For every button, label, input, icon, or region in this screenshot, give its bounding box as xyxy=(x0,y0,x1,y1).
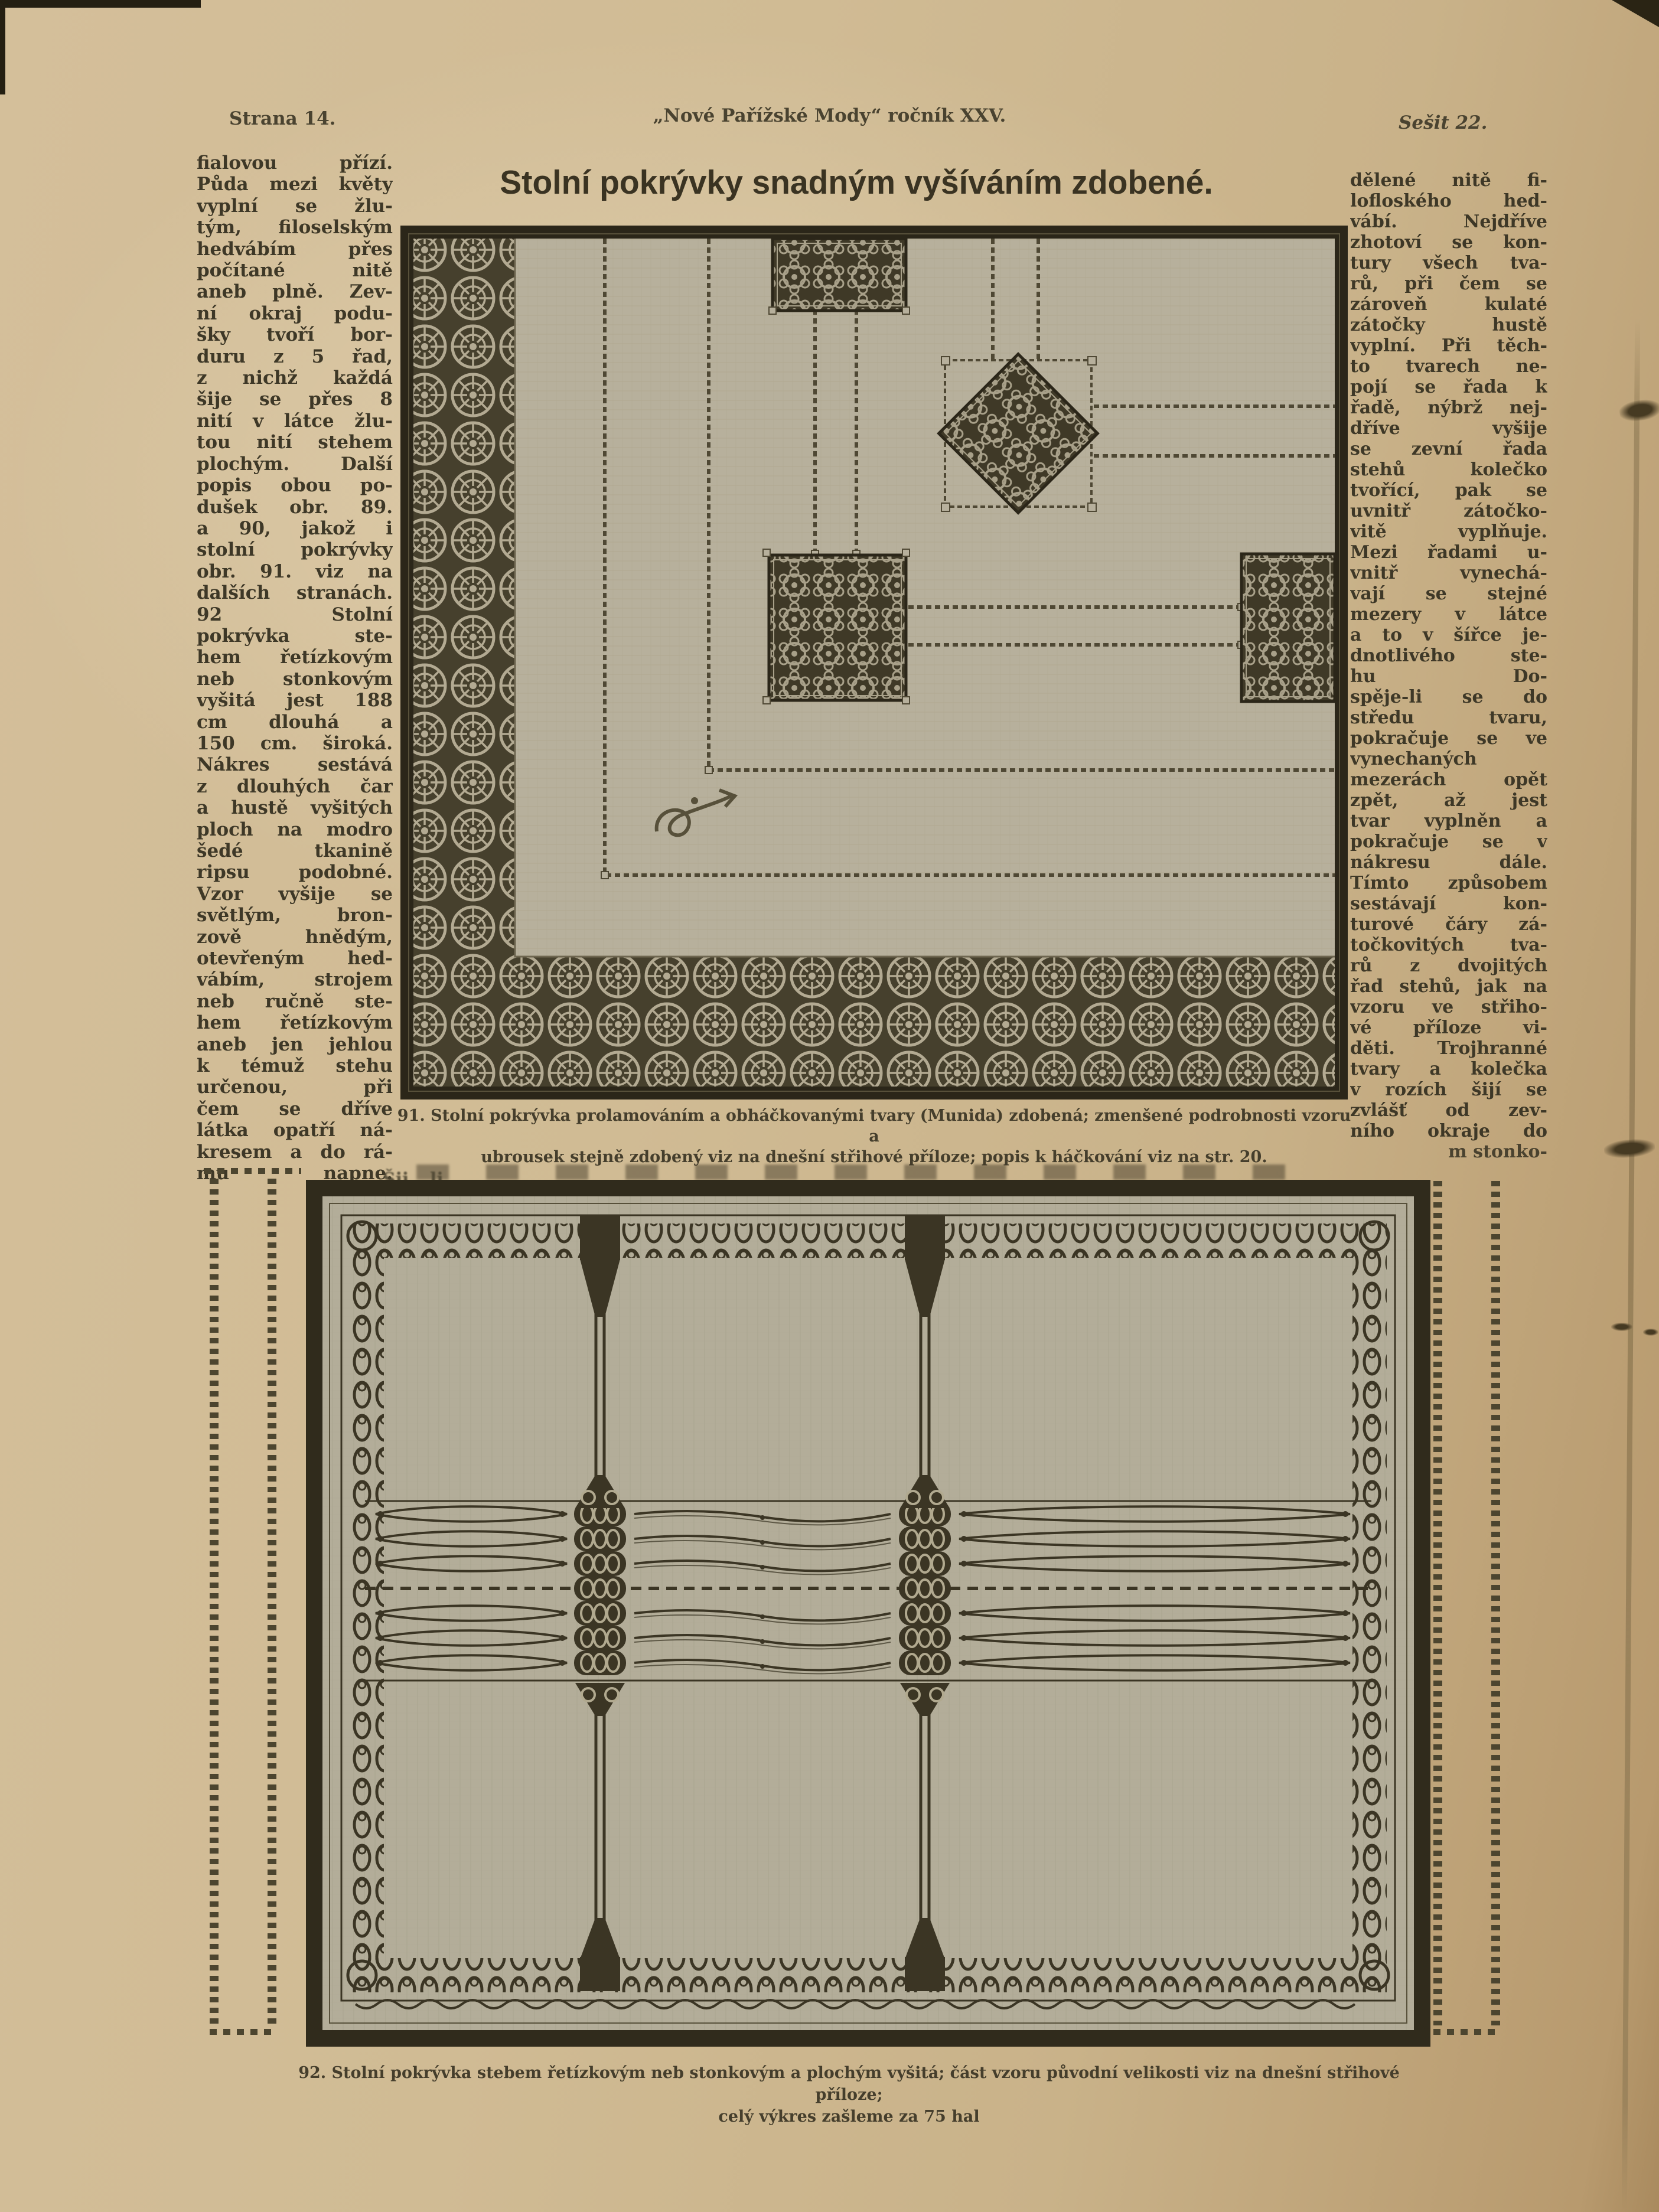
text-line: pokračuje se ve xyxy=(1350,728,1547,749)
obscured-text-line xyxy=(416,1164,1320,1180)
text-line: tvar vyplněn a xyxy=(1350,811,1547,831)
text-line: mezerách opět xyxy=(1350,769,1547,790)
text-line: kresem a do rá- xyxy=(197,1141,393,1163)
text-line: vyplní se žlu- xyxy=(197,195,393,217)
text-line: zátočky hustě xyxy=(1350,315,1547,335)
text-line: sestávají kon- xyxy=(1350,893,1547,914)
text-line: rů z dvojitých xyxy=(1350,955,1547,976)
text-line: počítané nitě xyxy=(197,260,393,281)
cut-mark xyxy=(1433,2029,1501,2035)
text-line: vnitř vynechá- xyxy=(1350,563,1547,583)
ink-blot xyxy=(1603,1137,1655,1159)
text-line: a hustě vyšitých xyxy=(197,797,393,818)
crochet-motif-center xyxy=(769,555,906,700)
cut-mark xyxy=(268,1179,276,2029)
text-line: lofloského hed- xyxy=(1350,191,1547,211)
issue-label: Sešit 22. xyxy=(1399,112,1487,133)
text-line: hem řetízkovým xyxy=(197,1012,393,1033)
text-line: hedvábím přes xyxy=(197,239,393,260)
text-line: středu tvaru, xyxy=(1350,707,1547,728)
crochet-motif-right xyxy=(1241,554,1335,702)
text-line: určenou, při xyxy=(197,1076,393,1098)
text-line: látka opatří ná- xyxy=(197,1120,393,1141)
text-line: pokračuje se v xyxy=(1350,831,1547,852)
text-line: Půda mezi květy xyxy=(197,174,393,195)
text-line: fialovou přízí. xyxy=(197,152,393,174)
text-line: nití v látce žlu- xyxy=(197,410,393,432)
text-line: z dlouhých čar xyxy=(197,776,393,797)
text-line: ripsu podobné. xyxy=(197,862,393,883)
cut-mark xyxy=(210,1179,219,2029)
text-line: tým, filoselským xyxy=(197,217,393,238)
figure-92-svg xyxy=(306,1180,1430,2047)
text-line: zároveň kulaté xyxy=(1350,294,1547,315)
text-line: m stonko- xyxy=(1350,1141,1547,1162)
cut-mark xyxy=(204,1168,301,1174)
text-line: hem řetízkovým xyxy=(197,647,393,668)
text-line: duru z 5 řad, xyxy=(197,346,393,367)
cut-mark xyxy=(210,2029,277,2035)
text-line: hu Do- xyxy=(1350,666,1547,687)
text-line: šedé tkanině xyxy=(197,840,393,862)
text-line: mezery v látce xyxy=(1350,604,1547,625)
text-line: děti. Trojhranné xyxy=(1350,1038,1547,1059)
cut-mark xyxy=(1433,1181,1442,2025)
text-line: dalších stranách. xyxy=(197,582,393,603)
text-line: 92. Stolní pokrývka stebem řetízkovým ne… xyxy=(283,2062,1414,2106)
text-line: tvořící, pak se xyxy=(1350,480,1547,501)
text-line: neb stonkovým xyxy=(197,668,393,690)
text-line: ního okraje do xyxy=(1350,1121,1547,1141)
text-line: aneb plně. Zev- xyxy=(197,281,393,302)
cut-mark xyxy=(1491,1181,1500,2025)
text-line: čem se dříve xyxy=(197,1098,393,1120)
text-line: vynechaných xyxy=(1350,749,1547,769)
text-line: nákresu dále. xyxy=(1350,852,1547,873)
text-line: uvnitř zátočko- xyxy=(1350,501,1547,521)
text-line: vyplní. Při těch- xyxy=(1350,335,1547,356)
text-line: vitě vyplňuje. xyxy=(1350,521,1547,542)
text-line: vzoru ve střiho- xyxy=(1350,997,1547,1017)
text-line: spěje-li se do xyxy=(1350,687,1547,707)
magazine-page: Strana 14. „Nové Pařížské Mody“ ročník X… xyxy=(0,0,1659,2212)
text-line: Nákres sestává xyxy=(197,754,393,775)
text-line: aneb jen jehlou xyxy=(197,1034,393,1055)
ink-speck xyxy=(1643,1329,1658,1336)
text-line: obr. 91. viz na xyxy=(197,561,393,582)
text-line: zově hnědým, xyxy=(197,926,393,948)
scan-edge-artifact xyxy=(0,0,201,8)
figure-91-caption: 91. Stolní pokrývka prolamováním a obháč… xyxy=(390,1105,1358,1167)
text-line: to tvarech ne- xyxy=(1350,356,1547,377)
right-text-column: dělené nitě fi-lofloského hed-vábí. Nejd… xyxy=(1350,170,1547,1162)
text-line: 92 Stolní xyxy=(197,604,393,625)
text-line: vají se stejné xyxy=(1350,583,1547,604)
article-title: Stolní pokrývky snadným vyšíváním zdoben… xyxy=(478,163,1234,202)
text-line: vábím, strojem xyxy=(197,969,393,990)
text-line: z nichž každá xyxy=(197,367,393,389)
text-line: Tímto způsobem xyxy=(1350,873,1547,893)
text-line: pokrývka ste- xyxy=(197,625,393,647)
text-line: v rozích šijí se xyxy=(1350,1079,1547,1100)
text-line: stolní pokrývky xyxy=(197,539,393,560)
figure-91-svg xyxy=(400,226,1348,1100)
text-line: Vzor vyšije se xyxy=(197,883,393,905)
text-line: dnotlivého ste- xyxy=(1350,645,1547,666)
scan-edge-artifact xyxy=(0,0,5,94)
ink-blot xyxy=(1618,397,1659,423)
text-line: stehů kolečko xyxy=(1350,459,1547,480)
text-line: 150 cm. široká. xyxy=(197,733,393,754)
text-line: plochým. Další xyxy=(197,454,393,475)
text-line: řadě, nýbrž nej- xyxy=(1350,397,1547,418)
figure-92-caption: 92. Stolní pokrývka stebem řetízkovým ne… xyxy=(283,2062,1414,2128)
text-line: vyšitá jest 188 xyxy=(197,690,393,711)
figure-92-illustration xyxy=(306,1180,1430,2047)
text-line: šije se přes 8 xyxy=(197,389,393,410)
text-line: dříve vyšije xyxy=(1350,418,1547,439)
text-line: zvlášť od zev- xyxy=(1350,1100,1547,1121)
binding-crease xyxy=(1622,319,1640,2212)
text-line: šky tvoří bor- xyxy=(197,324,393,345)
text-line: dělené nitě fi- xyxy=(1350,170,1547,191)
text-line: tvary a kolečka xyxy=(1350,1059,1547,1079)
text-line: a to v šířce je- xyxy=(1350,625,1547,645)
crochet-motif-top xyxy=(773,239,906,311)
text-line: 91. Stolní pokrývka prolamováním a obháč… xyxy=(390,1105,1358,1147)
text-line: Mezi řadami u- xyxy=(1350,542,1547,563)
text-line: dušek obr. 89. xyxy=(197,497,393,518)
text-line: ploch na modro xyxy=(197,819,393,840)
text-line: se zevní řada xyxy=(1350,439,1547,459)
text-line: otevřeným hed- xyxy=(197,948,393,969)
text-line: zhotoví se kon- xyxy=(1350,232,1547,253)
text-line: točkovitých tva- xyxy=(1350,935,1547,955)
text-line: a 90, jakož i xyxy=(197,518,393,539)
text-line: celý výkres zašleme za 75 hal xyxy=(283,2106,1414,2128)
text-line: popis obou po- xyxy=(197,475,393,496)
text-line: vábí. Nejdříve xyxy=(1350,211,1547,232)
text-line: rů, při čem se xyxy=(1350,273,1547,294)
figure-91-illustration xyxy=(400,226,1348,1100)
text-line: ní okraj podu- xyxy=(197,303,393,324)
scan-edge-artifact xyxy=(1612,0,1659,27)
left-text-column: fialovou přízí.Půda mezi květyvyplní se … xyxy=(197,152,393,1185)
text-line: světlým, bron- xyxy=(197,905,393,926)
text-line: k témuž stehu xyxy=(197,1055,393,1076)
text-line: tou nití stehem xyxy=(197,432,393,453)
text-line: pojí se řada k xyxy=(1350,377,1547,397)
text-line: turové čáry zá- xyxy=(1350,914,1547,935)
text-line: neb ručně ste- xyxy=(197,991,393,1012)
ink-speck xyxy=(1611,1323,1632,1331)
text-line: cm dlouhá a xyxy=(197,712,393,733)
text-line: vé příloze vi- xyxy=(1350,1017,1547,1038)
text-line: tury všech tva- xyxy=(1350,253,1547,273)
text-line: řad stehů, jak na xyxy=(1350,976,1547,997)
text-line: zpět, až jest xyxy=(1350,790,1547,811)
